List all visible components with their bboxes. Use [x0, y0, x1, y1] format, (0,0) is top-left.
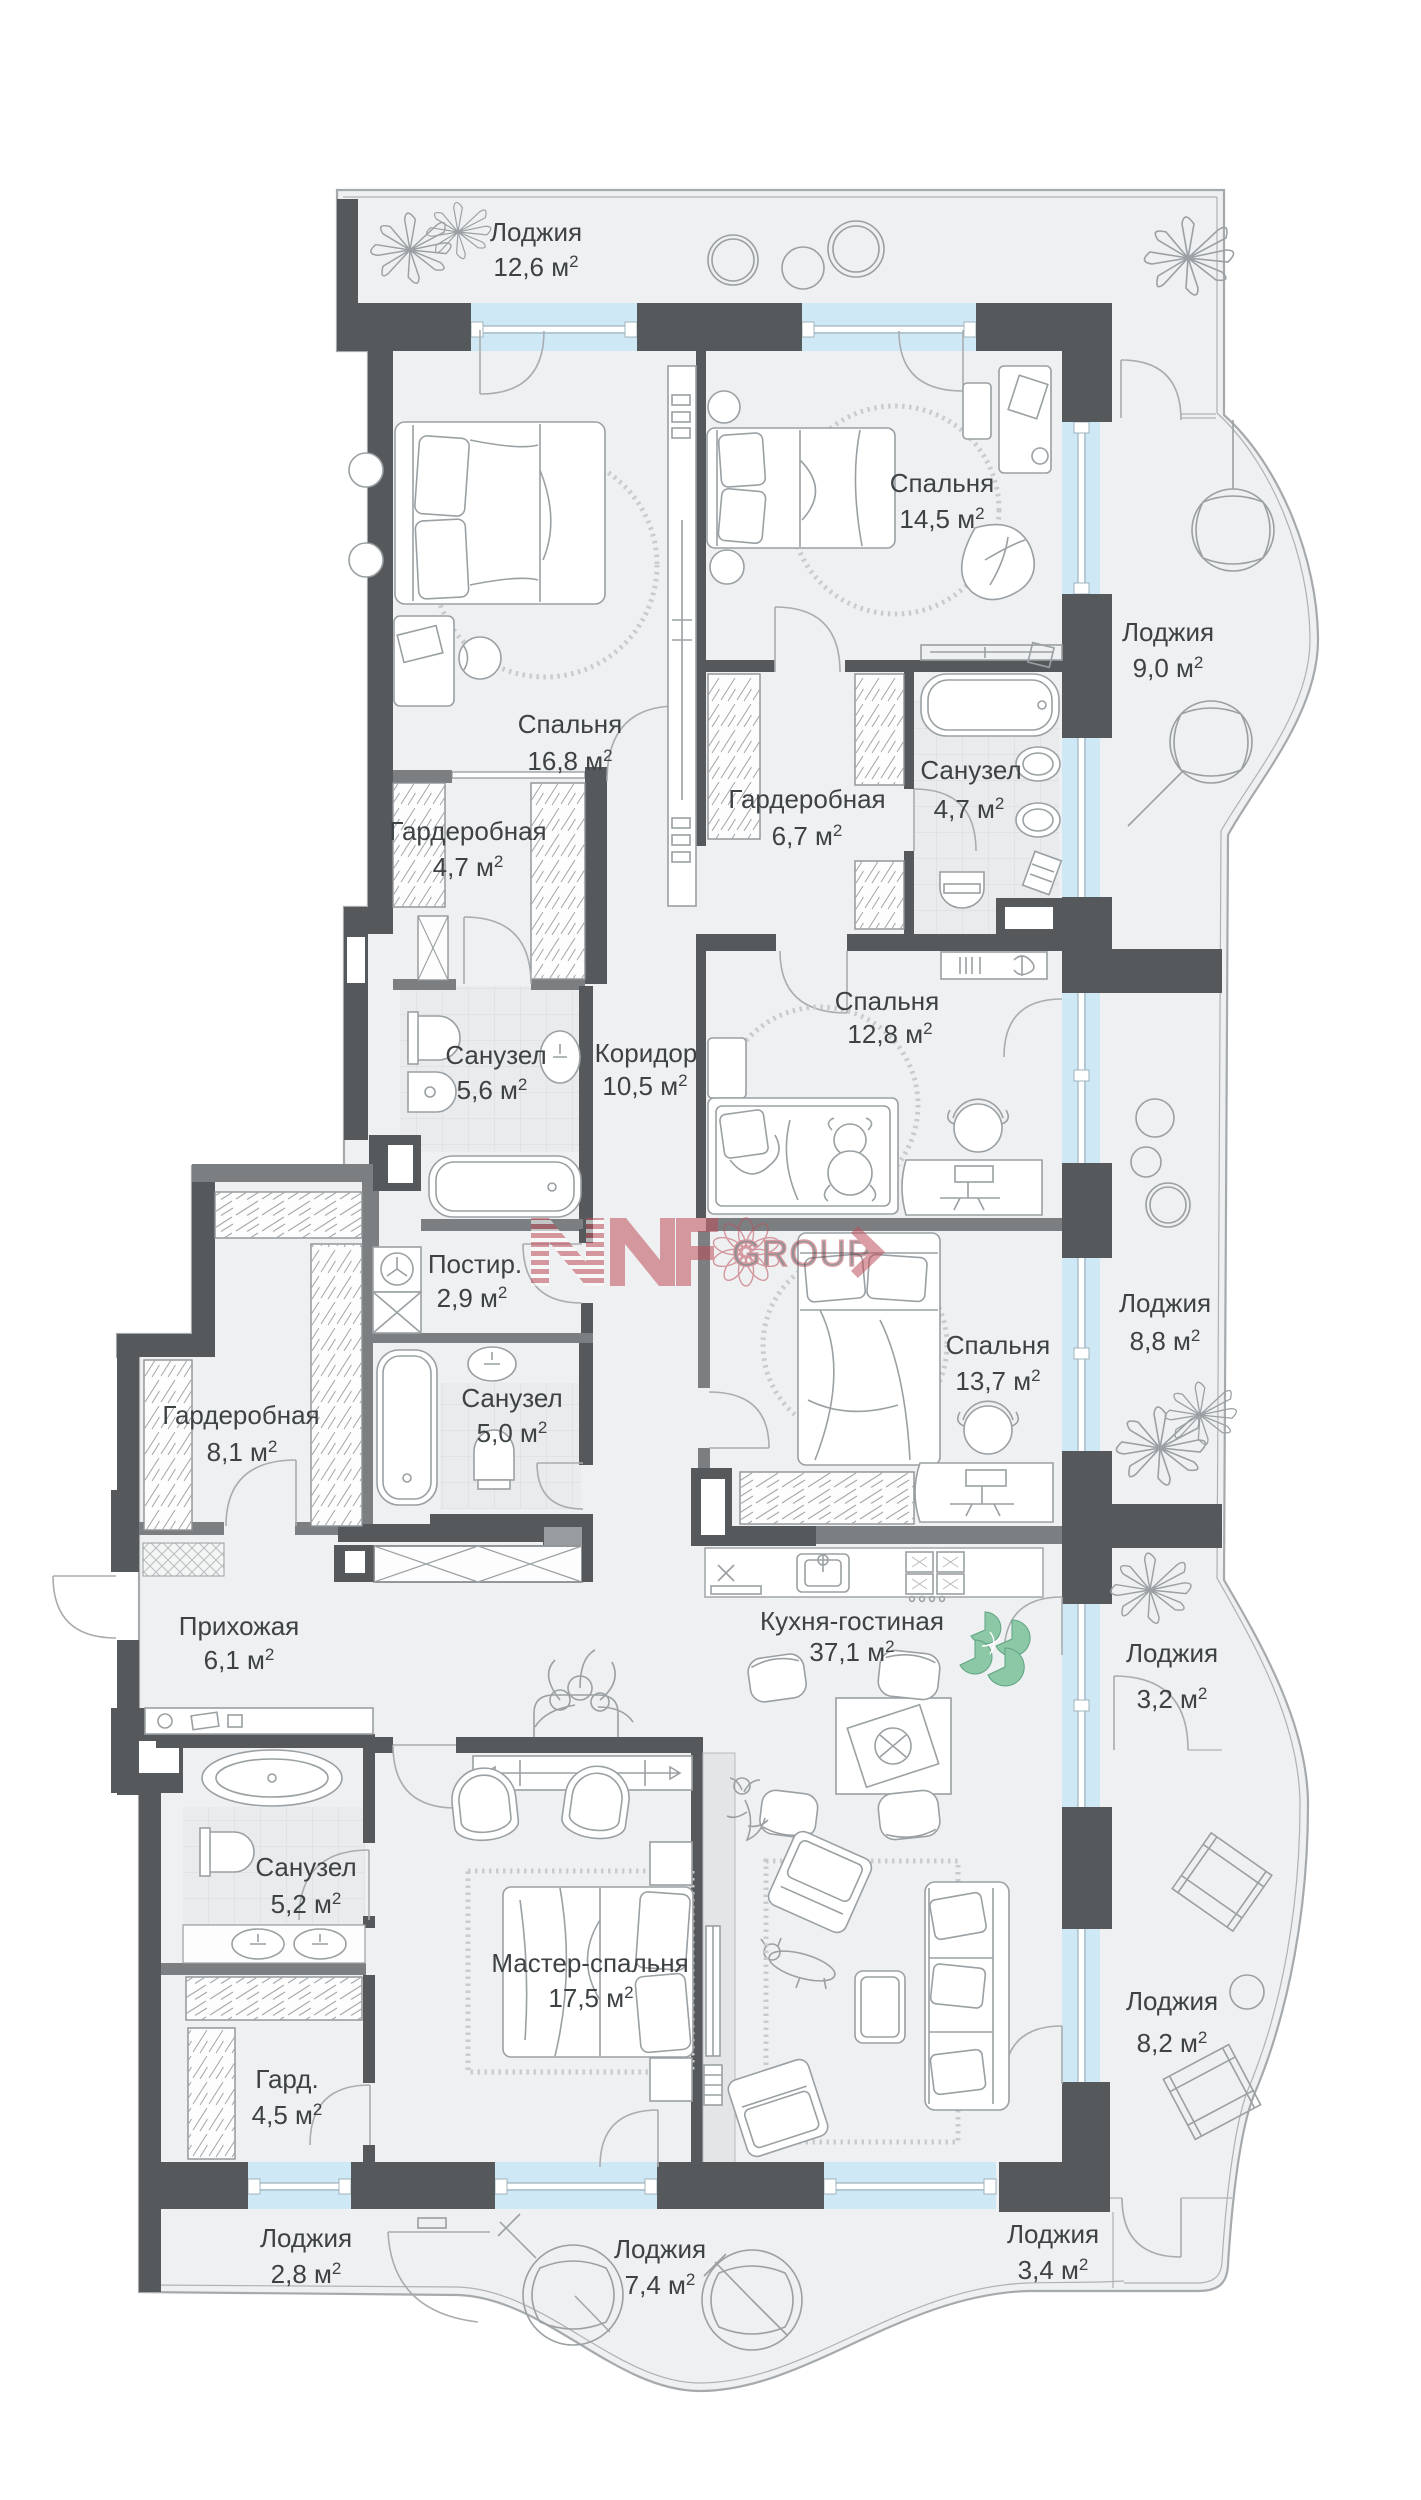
svg-text:Лоджия: Лоджия: [614, 2234, 706, 2264]
svg-text:Спальня: Спальня: [946, 1330, 1050, 1360]
svg-text:Лоджия: Лоджия: [1007, 2219, 1099, 2249]
svg-text:12,6 м2: 12,6 м2: [493, 252, 578, 282]
svg-text:GROUP: GROUP: [732, 1233, 873, 1274]
svg-text:Лоджия: Лоджия: [490, 217, 582, 247]
svg-text:Лоджия: Лоджия: [1122, 617, 1214, 647]
svg-text:8,1 м2: 8,1 м2: [207, 1437, 278, 1467]
svg-text:8,2 м2: 8,2 м2: [1137, 2028, 1208, 2058]
svg-text:Санузел: Санузел: [461, 1383, 562, 1413]
svg-text:7,4 м2: 7,4 м2: [625, 2270, 696, 2300]
svg-text:9,0 м2: 9,0 м2: [1133, 653, 1204, 683]
svg-text:2,9 м2: 2,9 м2: [437, 1283, 508, 1313]
svg-text:Лоджия: Лоджия: [1126, 1986, 1218, 2016]
svg-text:Спальня: Спальня: [835, 986, 939, 1016]
svg-text:3,4 м2: 3,4 м2: [1018, 2255, 1089, 2285]
svg-text:16,8 м2: 16,8 м2: [527, 746, 612, 776]
svg-text:13,7 м2: 13,7 м2: [955, 1366, 1040, 1396]
svg-text:14,5 м2: 14,5 м2: [899, 504, 984, 534]
svg-text:Гардеробная: Гардеробная: [162, 1400, 319, 1430]
svg-text:Постир.: Постир.: [428, 1249, 522, 1279]
svg-text:4,5 м2: 4,5 м2: [252, 2100, 323, 2130]
svg-text:6,7 м2: 6,7 м2: [772, 821, 843, 851]
svg-text:Санузел: Санузел: [920, 755, 1021, 785]
svg-text:Гардеробная: Гардеробная: [389, 816, 546, 846]
svg-text:10,5 м2: 10,5 м2: [602, 1071, 687, 1101]
svg-text:Лоджия: Лоджия: [260, 2223, 352, 2253]
svg-text:8,8 м2: 8,8 м2: [1130, 1326, 1201, 1356]
svg-text:Коридор: Коридор: [595, 1038, 698, 1068]
svg-text:37,1 м2: 37,1 м2: [809, 1637, 894, 1667]
svg-text:4,7 м2: 4,7 м2: [433, 852, 504, 882]
svg-text:Санузел: Санузел: [445, 1040, 546, 1070]
svg-text:3,2 м2: 3,2 м2: [1137, 1684, 1208, 1714]
svg-text:Спальня: Спальня: [518, 709, 622, 739]
svg-text:17,5 м2: 17,5 м2: [548, 1983, 633, 2013]
svg-text:5,0 м2: 5,0 м2: [477, 1418, 548, 1448]
svg-text:Спальня: Спальня: [890, 468, 994, 498]
svg-text:Гардеробная: Гардеробная: [728, 784, 885, 814]
svg-text:Санузел: Санузел: [255, 1852, 356, 1882]
svg-text:Лоджия: Лоджия: [1126, 1638, 1218, 1668]
svg-text:5,6 м2: 5,6 м2: [457, 1075, 528, 1105]
svg-text:Прихожая: Прихожая: [179, 1611, 299, 1641]
svg-text:2,8 м2: 2,8 м2: [271, 2259, 342, 2289]
svg-text:4,7 м2: 4,7 м2: [934, 794, 1005, 824]
svg-text:12,8 м2: 12,8 м2: [847, 1019, 932, 1049]
svg-text:Кухня-гостиная: Кухня-гостиная: [760, 1606, 944, 1636]
svg-text:Мастер-спальня: Мастер-спальня: [491, 1948, 688, 1978]
svg-text:Гард.: Гард.: [255, 2064, 318, 2094]
svg-text:Лоджия: Лоджия: [1119, 1288, 1211, 1318]
svg-text:6,1 м2: 6,1 м2: [204, 1645, 275, 1675]
svg-text:5,2 м2: 5,2 м2: [271, 1889, 342, 1919]
